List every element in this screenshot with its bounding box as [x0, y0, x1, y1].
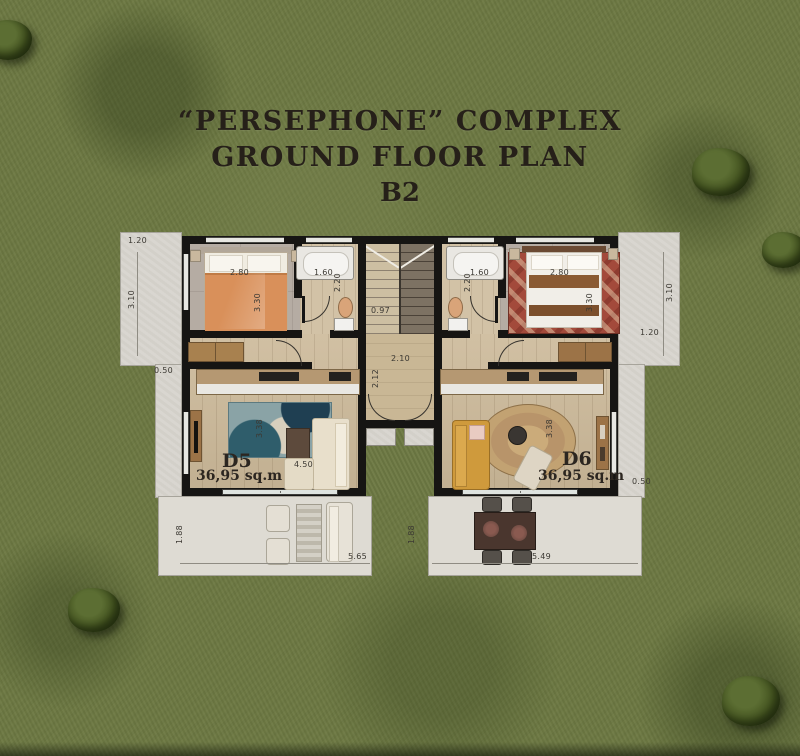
plan-name: GROUND FLOOR PLAN — [0, 140, 800, 176]
entry-stoop-left — [366, 428, 396, 446]
dimension-label: 3.30 — [253, 293, 262, 312]
bush-right-edge — [762, 232, 800, 268]
bed-left — [204, 252, 288, 330]
dimension-label: 3.10 — [665, 283, 674, 302]
path-left-narrow — [155, 364, 182, 498]
washer-right — [448, 318, 468, 331]
complex-name: “PERSEPHONE” COMPLEX — [0, 104, 800, 140]
wall-mid-left — [182, 330, 302, 338]
outdoor-rug-left — [296, 504, 322, 562]
window-living-right-side — [611, 412, 617, 474]
bush-top-left — [0, 20, 32, 60]
stair-spine — [399, 244, 401, 334]
nightstand-right-a — [509, 248, 520, 260]
dimension-label: 3.10 — [127, 290, 136, 309]
dimension-label: 3.38 — [255, 419, 264, 438]
dimension-label: 2.20 — [463, 273, 472, 292]
dimension-label: 2.80 — [230, 268, 249, 277]
unit-d6-label: D6 — [562, 448, 592, 470]
bed-right — [526, 252, 602, 328]
sofa-right — [452, 420, 490, 490]
wardrobe-left — [188, 342, 244, 362]
dimension-label: 1.88 — [407, 525, 416, 544]
dimension-label: 0.50 — [632, 477, 651, 486]
washbasin-right — [448, 297, 463, 318]
washer-left — [334, 318, 354, 331]
block-name: B2 — [0, 176, 800, 210]
dimension-label: 4.50 — [294, 460, 313, 469]
bush-bottom-right — [722, 676, 780, 726]
wall-core-left — [358, 236, 366, 496]
window-bedroom-right — [516, 237, 594, 243]
unit-d6-area: 36,95 sq.m — [538, 468, 624, 484]
floor-plan-canvas: “PERSEPHONE” COMPLEX GROUND FLOOR PLAN B… — [0, 0, 800, 756]
dimline-patio-right — [432, 563, 638, 564]
tv-console-left — [190, 410, 202, 462]
dresser-right — [558, 342, 612, 362]
door-leaf-bath-left — [302, 296, 305, 323]
kitchen-counter-right — [440, 369, 604, 395]
dimension-label: 1.20 — [128, 236, 147, 245]
dimline-left-vert — [137, 252, 138, 356]
dimline-patio-left — [180, 563, 370, 564]
dimension-label: 1.60 — [470, 268, 489, 277]
window-living-left-side — [183, 412, 189, 474]
dimension-label: 1.20 — [640, 328, 659, 337]
dimension-label: 5.65 — [348, 552, 367, 561]
wall-bath-south-left — [330, 330, 366, 338]
nightstand-left-a — [190, 250, 201, 262]
unit-d5-area: 36,95 sq.m — [196, 468, 282, 484]
dimline-right-vert — [663, 252, 664, 356]
dining-chair-a — [482, 497, 502, 512]
kitchen-cooktop-right — [507, 372, 529, 381]
dimension-label: 3.30 — [585, 293, 594, 312]
kitchen-counter-left — [196, 369, 360, 395]
plan-title: “PERSEPHONE” COMPLEX GROUND FLOOR PLAN B… — [0, 104, 800, 210]
dimension-label: 0.50 — [154, 366, 173, 375]
dimension-label: 2.10 — [391, 354, 410, 363]
sofa-left — [312, 418, 350, 490]
dining-table — [474, 512, 536, 550]
console-right-wall — [596, 416, 609, 470]
dimension-label: 3.38 — [545, 419, 554, 438]
dimension-label: 1.88 — [175, 525, 184, 544]
window-bedroom-left — [206, 237, 284, 243]
kitchen-cooktop-left — [329, 372, 351, 381]
wall-core-right — [434, 236, 442, 496]
window-bedroom-left-side — [183, 254, 189, 310]
dimension-label: 2.20 — [333, 273, 342, 292]
washbasin-left — [338, 297, 353, 318]
sofa-pillow-right — [469, 425, 485, 440]
outdoor-chair-left-b — [266, 538, 290, 565]
wall-hall-south — [358, 420, 442, 428]
dimension-label: 2.80 — [550, 268, 569, 277]
dimension-label: 5.49 — [532, 552, 551, 561]
dining-chair-b — [512, 497, 532, 512]
kitchen-sink-left — [259, 372, 299, 381]
entry-stoop-right — [404, 428, 434, 446]
dimension-label: 0.97 — [371, 306, 390, 315]
dimension-label: 1.60 — [314, 268, 333, 277]
window-bath-left — [306, 237, 352, 243]
kitchen-sink-right — [539, 372, 577, 381]
window-bath-right — [448, 237, 494, 243]
outdoor-chair-left-a — [266, 505, 290, 532]
dimension-label: 2.12 — [371, 369, 380, 388]
nightstand-right-b — [608, 248, 618, 260]
wall-bath-south-right — [434, 330, 470, 338]
bush-bottom-left — [68, 588, 120, 632]
door-leaf-bath-right — [495, 296, 498, 323]
pouf-right — [508, 426, 527, 445]
